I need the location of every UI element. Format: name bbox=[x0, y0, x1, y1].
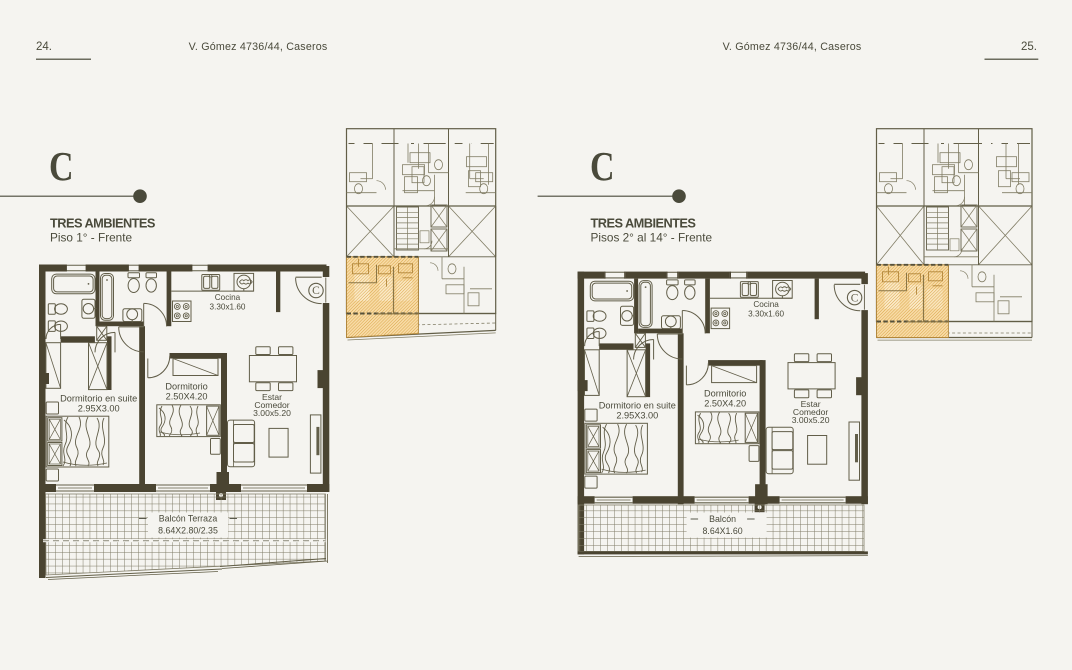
svg-text:Piso 1° - Frente: Piso 1° - Frente bbox=[50, 231, 133, 245]
svg-text:V. Gómez 4736/44, Caseros: V. Gómez 4736/44, Caseros bbox=[189, 41, 328, 53]
svg-text:3.30x1.60: 3.30x1.60 bbox=[210, 302, 246, 311]
svg-text:Balcón Terraza: Balcón Terraza bbox=[159, 514, 218, 524]
svg-text:3.30x1.60: 3.30x1.60 bbox=[748, 309, 784, 318]
svg-text:C: C bbox=[851, 292, 859, 304]
svg-text:24.: 24. bbox=[36, 41, 52, 53]
svg-text:25.: 25. bbox=[1021, 41, 1037, 53]
svg-text:TRES AMBIENTES: TRES AMBIENTES bbox=[591, 216, 697, 231]
svg-text:2.95X3.00: 2.95X3.00 bbox=[78, 403, 120, 413]
svg-text:2.50X4.20: 2.50X4.20 bbox=[166, 392, 208, 402]
svg-text:2.50X4.20: 2.50X4.20 bbox=[704, 399, 746, 409]
svg-text:3.00x5.20: 3.00x5.20 bbox=[253, 408, 291, 418]
svg-text:8.64X2.80/2.35: 8.64X2.80/2.35 bbox=[158, 526, 218, 536]
svg-text:8.64X1.60: 8.64X1.60 bbox=[703, 526, 743, 536]
svg-text:Dormitorio: Dormitorio bbox=[165, 382, 207, 392]
svg-text:Dormitorio: Dormitorio bbox=[704, 389, 746, 399]
svg-text:C: C bbox=[590, 143, 615, 189]
svg-text:Balcón: Balcón bbox=[709, 514, 736, 524]
svg-text:C: C bbox=[312, 285, 320, 297]
svg-text:Cocina: Cocina bbox=[753, 300, 779, 309]
svg-text:TRES AMBIENTES: TRES AMBIENTES bbox=[50, 216, 156, 231]
svg-text:Pisos 2° al 14° - Frente: Pisos 2° al 14° - Frente bbox=[591, 231, 713, 245]
svg-text:Cocina: Cocina bbox=[215, 293, 241, 302]
svg-text:Dormitorio en suite: Dormitorio en suite bbox=[60, 393, 137, 403]
svg-text:2.95X3.00: 2.95X3.00 bbox=[616, 410, 658, 420]
svg-text:C: C bbox=[49, 143, 74, 189]
svg-text:V. Gómez 4736/44, Caseros: V. Gómez 4736/44, Caseros bbox=[723, 41, 862, 53]
svg-text:Dormitorio en suite: Dormitorio en suite bbox=[599, 400, 676, 410]
svg-text:3.00x5.20: 3.00x5.20 bbox=[792, 415, 830, 425]
